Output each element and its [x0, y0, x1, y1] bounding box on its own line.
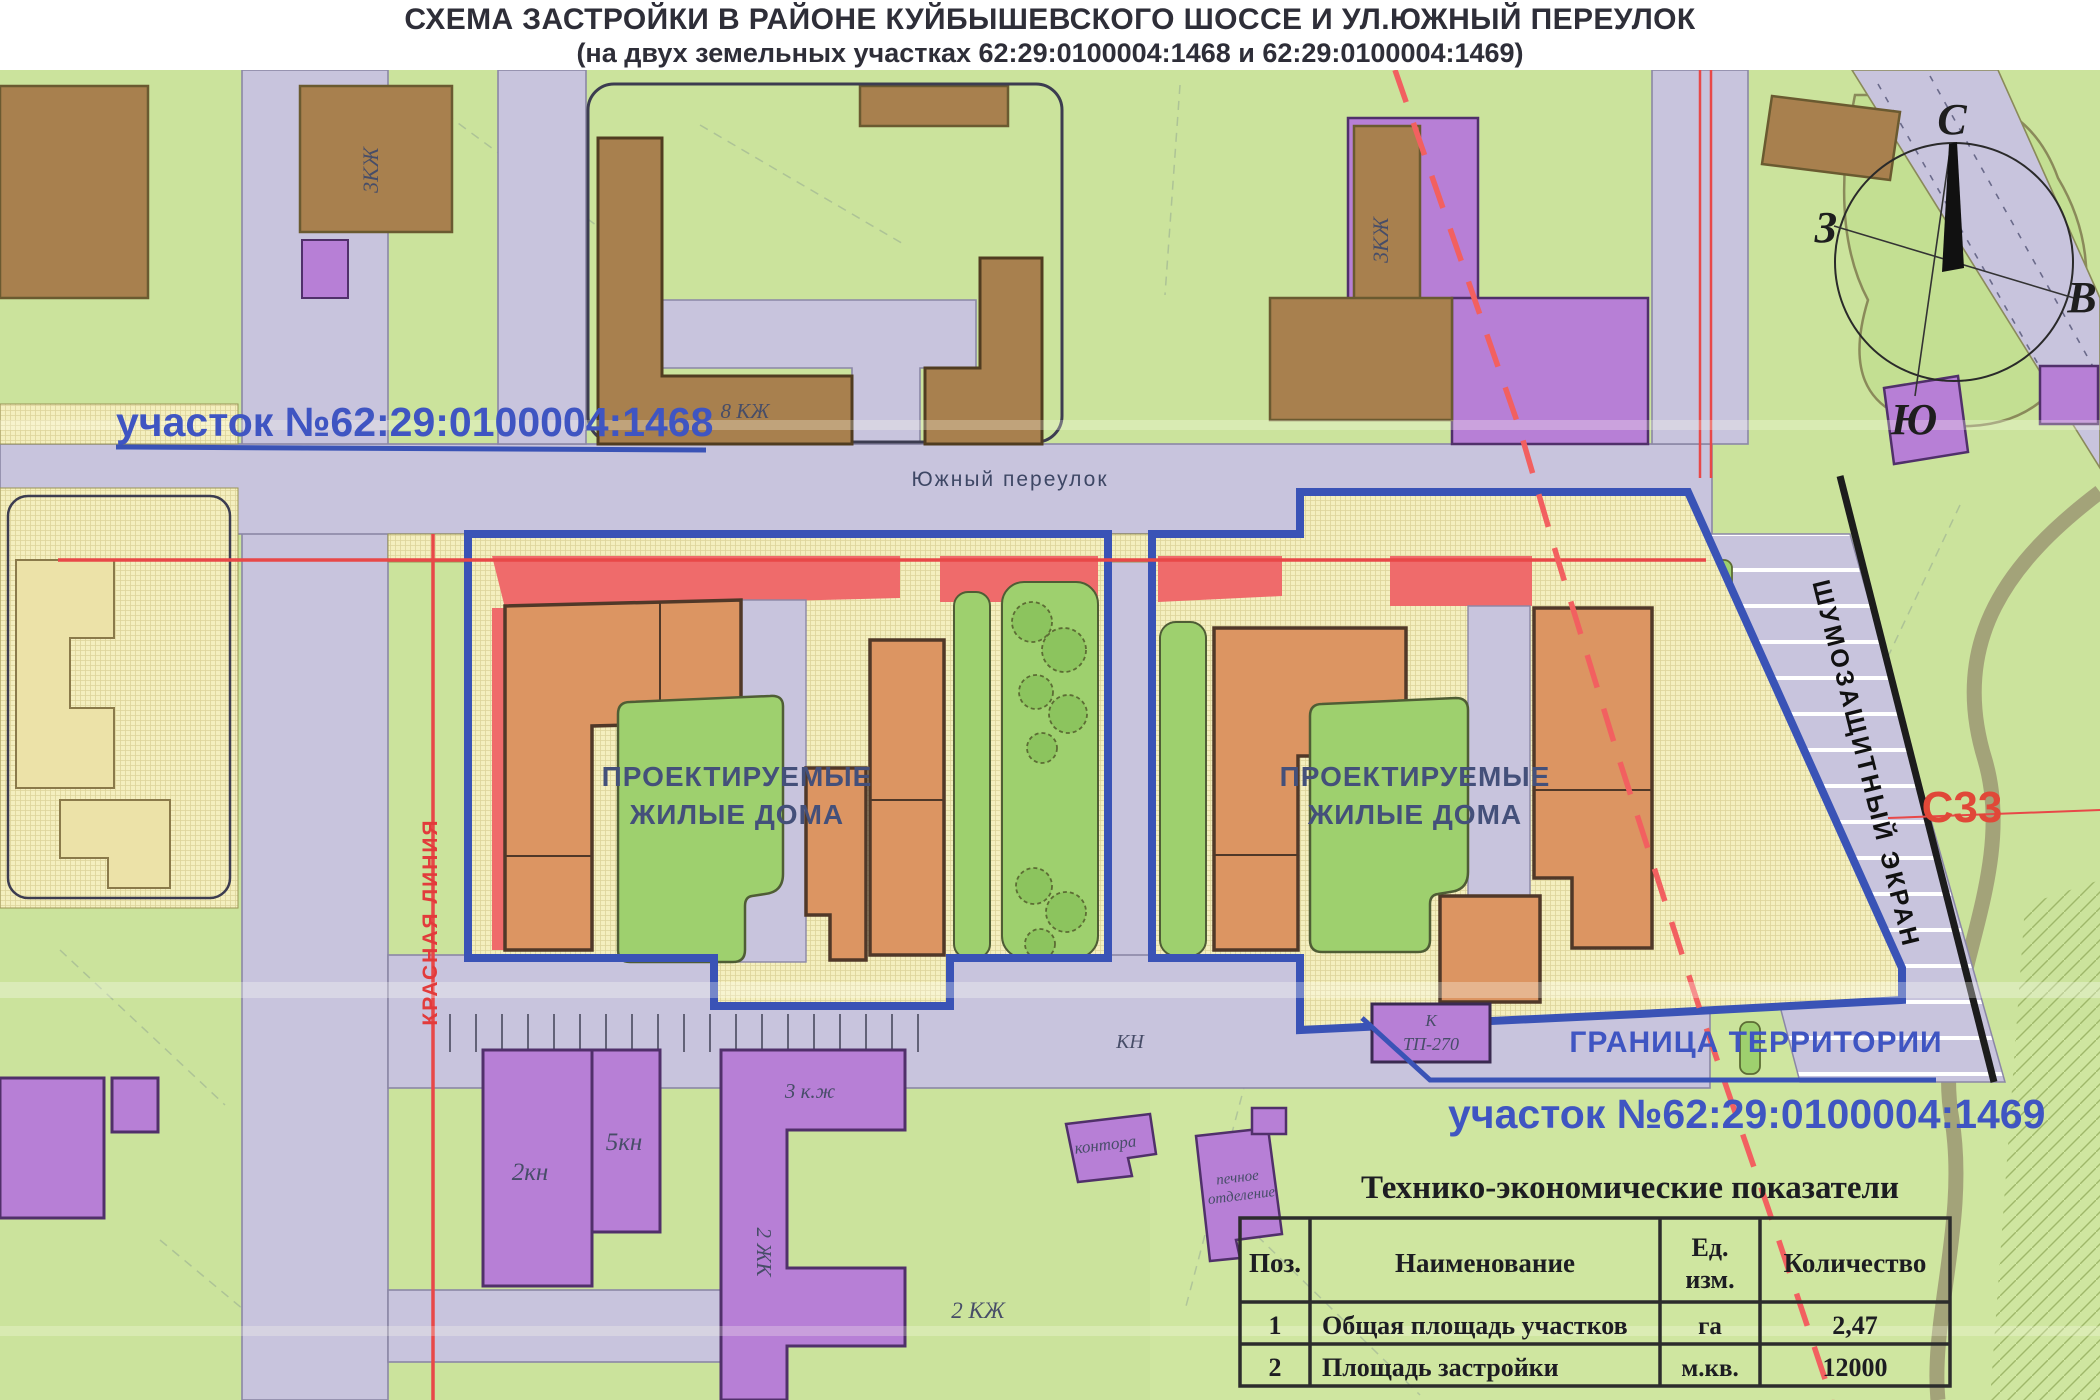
- tep-header-pos: Поз.: [1249, 1248, 1301, 1278]
- label-3kzh-left: 3КЖ: [358, 146, 383, 194]
- projected-housing-1-line1: ПРОЕКТИРУЕМЫЕ: [602, 761, 873, 792]
- projected-housing-2-line2: ЖИЛЫЕ ДОМА: [1307, 799, 1522, 830]
- tep-header-qty: Количество: [1784, 1248, 1927, 1278]
- label-2kzh: 2 КЖ: [951, 1298, 1006, 1323]
- building-purple-bl2: [112, 1078, 158, 1132]
- tep-row1-name: Общая площадь участков: [1322, 1311, 1628, 1340]
- site-plan-page: СХЕМА ЗАСТРОЙКИ В РАЙОНЕ КУЙБЫШЕВСКОГО Ш…: [0, 0, 2100, 1400]
- parcel-1468-underline: [116, 447, 706, 450]
- grid-mark-label: С33: [1922, 783, 2003, 832]
- building-purple-bl1: [0, 1078, 104, 1218]
- label-3kzh-right: 3КЖ: [1368, 216, 1393, 264]
- building-brown-5: [1270, 298, 1452, 420]
- map-canvas: С Ю З В участок №62:29:0100004:1468 учас…: [0, 0, 2100, 1400]
- drawing-subtitle: (на двух земельных участках 62:29:010000…: [0, 38, 2100, 69]
- tep-row2-unit: м.кв.: [1681, 1355, 1738, 1382]
- projected-housing-1-line2: ЖИЛЫЕ ДОМА: [629, 799, 844, 830]
- building-brown-6: [1762, 96, 1900, 180]
- drawing-title: СХЕМА ЗАСТРОЙКИ В РАЙОНЕ КУЙБЫШЕВСКОГО Ш…: [0, 3, 2100, 37]
- tep-row1-pos: 1: [1269, 1311, 1282, 1340]
- building-purple-5: [2040, 366, 2098, 424]
- label-8kzh: 8 КЖ: [721, 399, 771, 423]
- tep-row2-qty: 12000: [1823, 1353, 1888, 1382]
- street-label: Южный переулок: [911, 468, 1108, 491]
- label-5kn: 5кн: [606, 1129, 643, 1156]
- red-line-label: КРАСНАЯ ЛИНИЯ: [419, 818, 442, 1025]
- drawing-header: СХЕМА ЗАСТРОЙКИ В РАЙОНЕ КУЙБЫШЕВСКОГО Ш…: [0, 0, 2100, 70]
- label-2kn: 2кн: [512, 1159, 549, 1186]
- territory-boundary-label: ГРАНИЦА ТЕРРИТОРИИ: [1569, 1026, 1942, 1059]
- building-k-small: [1252, 1108, 1286, 1134]
- road-between-parcels: [1108, 534, 1152, 1010]
- compass-north-label: С: [1937, 95, 1967, 144]
- tep-table-title: Технико-экономические показатели: [1361, 1170, 1899, 1206]
- label-kn: КН: [1115, 1031, 1145, 1053]
- building-brown-1: [0, 86, 148, 298]
- label-k: К: [1424, 1011, 1438, 1030]
- tep-row1-unit: га: [1698, 1313, 1722, 1340]
- green-strip-1468a: [954, 592, 990, 958]
- tep-header-name: Наименование: [1395, 1248, 1575, 1278]
- road-north-1: [498, 70, 586, 444]
- tep-header-unit-2: изм.: [1685, 1265, 1734, 1294]
- tep-row1-qty: 2,47: [1832, 1311, 1878, 1340]
- tep-row2-name: Площадь застройки: [1322, 1353, 1559, 1382]
- parcel-1469-label: участок №62:29:0100004:1469: [1448, 1091, 2045, 1137]
- green-strip-1469: [1160, 622, 1206, 956]
- building-brown-3: [860, 86, 1008, 126]
- tep-header-unit-1: Ед.: [1692, 1233, 1729, 1262]
- projected-housing-2-line1: ПРОЕКТИРУЕМЫЕ: [1280, 761, 1551, 792]
- label-tp270: ТП-270: [1403, 1034, 1459, 1054]
- compass-south-label: Ю: [1890, 395, 1937, 444]
- compass-west-label: З: [1814, 203, 1837, 252]
- label-3kzh-small: 3 к.ж: [784, 1079, 836, 1103]
- label-2zhk-vert: 2 ЖК: [752, 1228, 776, 1278]
- tep-row2-pos: 2: [1269, 1353, 1282, 1382]
- parcel-1468-label: участок №62:29:0100004:1468: [116, 399, 713, 445]
- compass-east-label: В: [2066, 273, 2096, 322]
- building-purple-small-1: [302, 240, 348, 298]
